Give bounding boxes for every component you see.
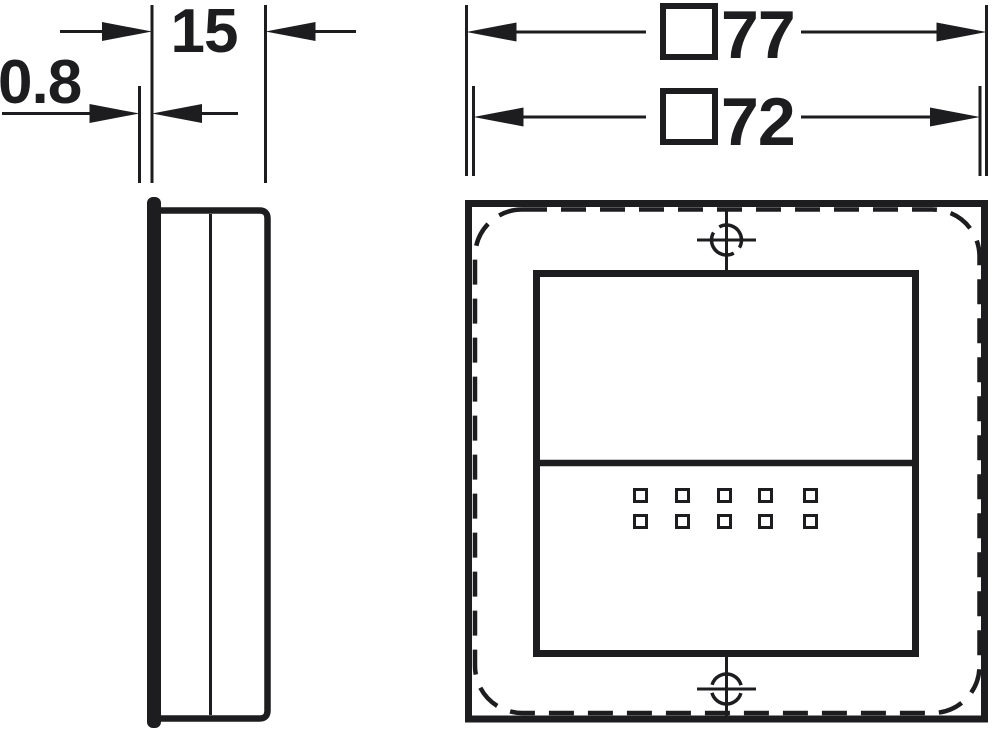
sensor-window (805, 490, 817, 502)
dimension-depth: 15 (60, 0, 356, 183)
square-symbol-icon (663, 91, 715, 142)
arrowhead-right-icon (937, 23, 987, 42)
arrowhead-left-icon (152, 104, 202, 123)
arrowhead-right-icon (90, 104, 140, 123)
sensor-window (760, 490, 772, 502)
sensor-window (677, 490, 689, 502)
arrowhead-left-icon (266, 22, 316, 41)
arrowhead-right-icon (102, 22, 152, 41)
arrowhead-left-icon (474, 108, 524, 127)
dimension-drawing: 15 0.8 77 72 (0, 0, 993, 730)
sensor-window (635, 516, 647, 528)
front-view (469, 204, 985, 720)
sensor-window (677, 516, 689, 528)
square-symbol-icon (663, 6, 715, 57)
arrowhead-left-icon (467, 23, 517, 42)
sensor-window (719, 516, 731, 528)
dimension-cutout-size: 72 (474, 84, 981, 176)
arrowhead-right-icon (930, 108, 980, 127)
housing-body-outline (158, 211, 268, 719)
front-plate-profile (147, 197, 161, 728)
dimension-value: 77 (721, 0, 795, 73)
side-view (147, 197, 268, 728)
sensor-window (760, 516, 772, 528)
dimension-plate-thickness: 0.8 (0, 48, 238, 183)
dimension-value: 0.8 (0, 48, 81, 117)
sensor-window (805, 516, 817, 528)
technical-drawing-canvas: 15 0.8 77 72 (0, 0, 993, 730)
sensor-window (635, 490, 647, 502)
sensor-window (719, 490, 731, 502)
dimension-value: 72 (721, 84, 795, 160)
dimension-value: 15 (171, 0, 238, 66)
